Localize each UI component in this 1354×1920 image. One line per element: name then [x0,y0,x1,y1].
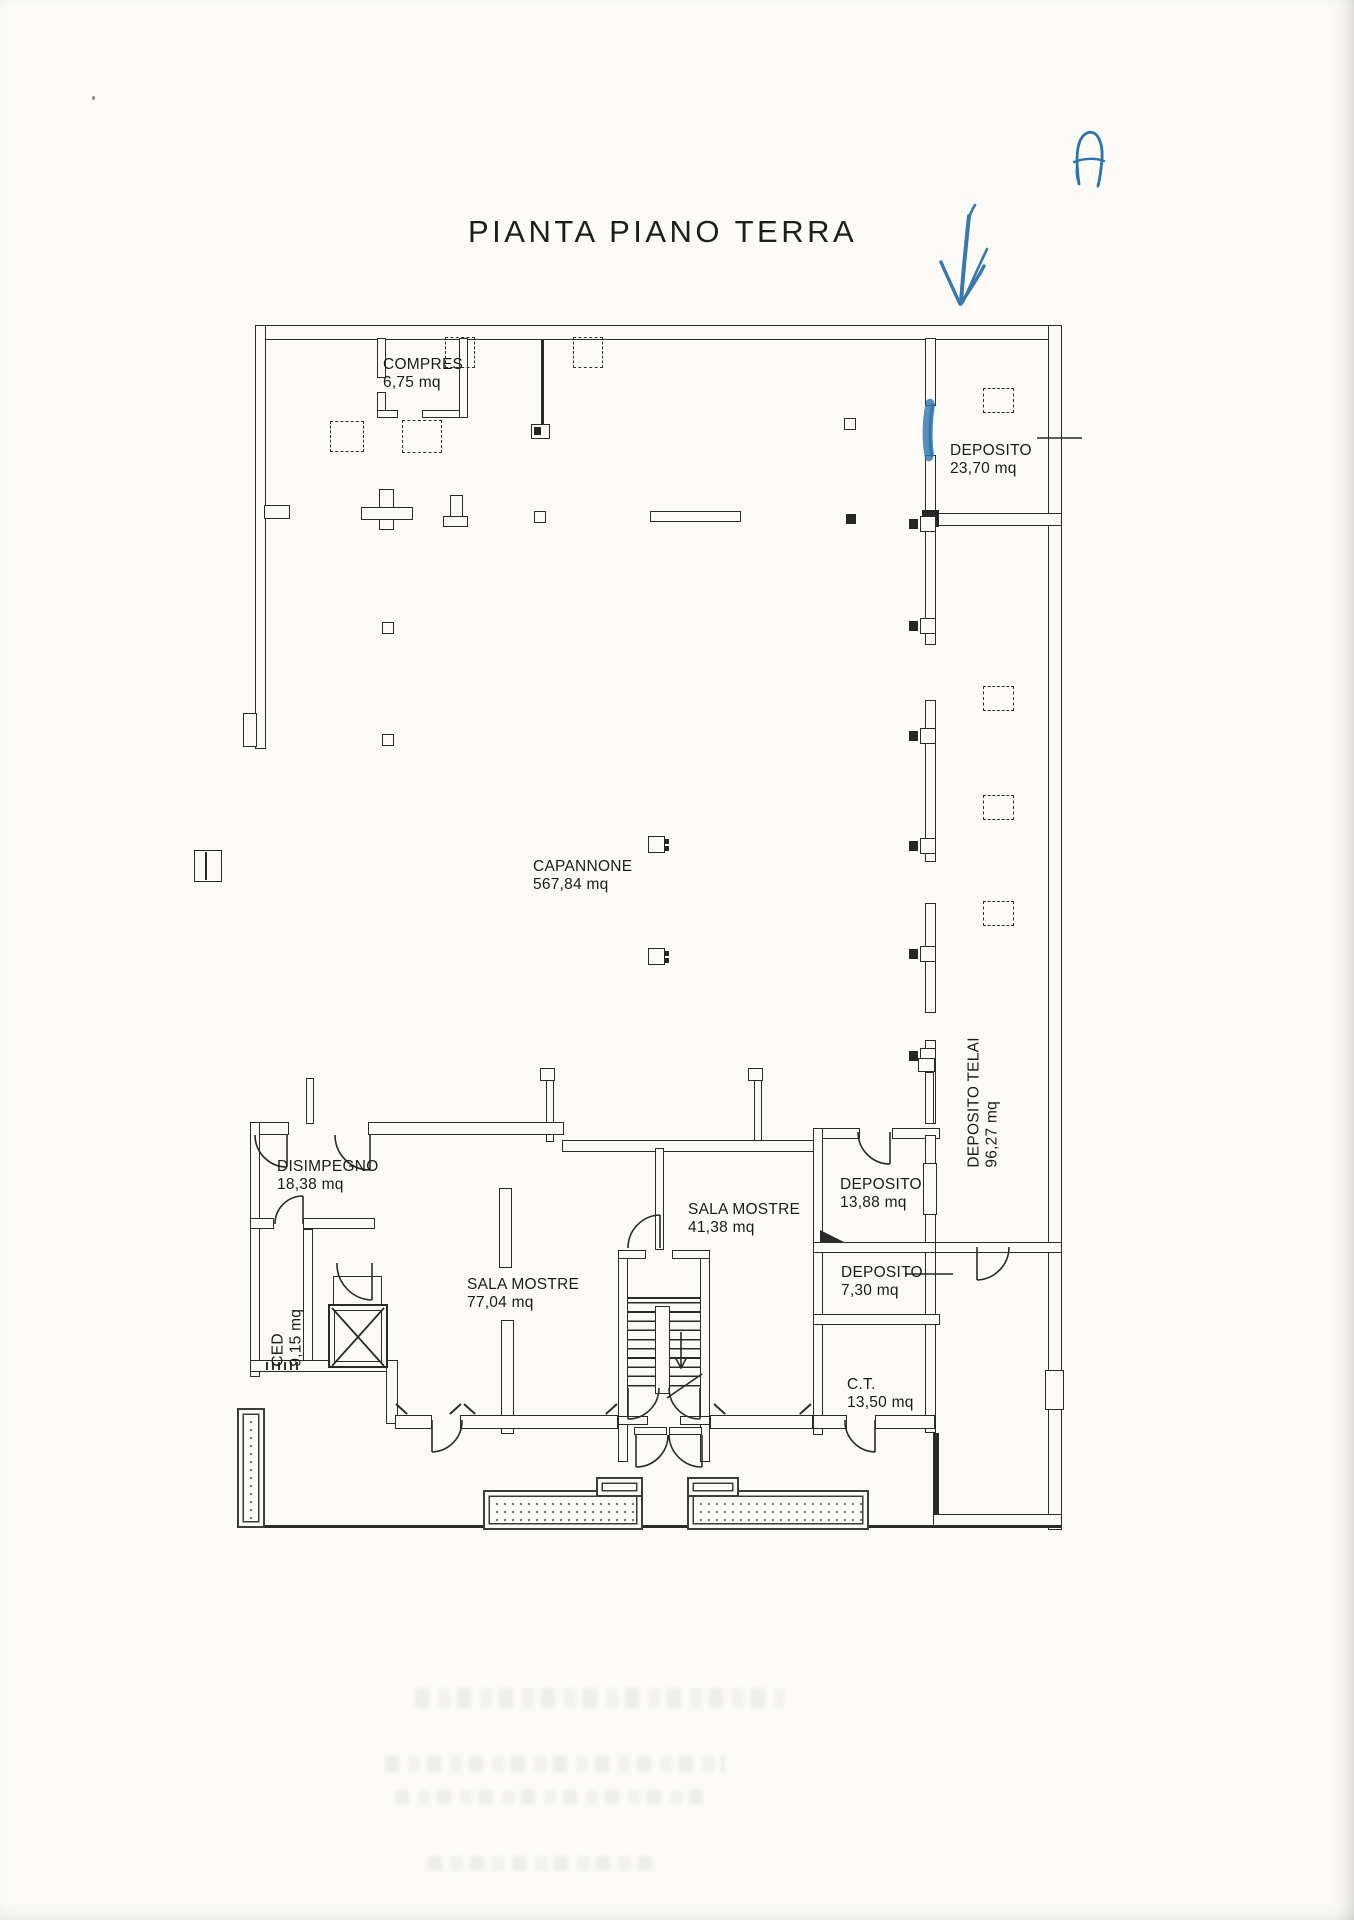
ground-line [240,1525,1062,1528]
wall-left-upper [255,325,266,749]
pilaster-marker [920,946,936,962]
facade-recess-tick [713,1403,726,1415]
column-marker-tick [664,839,669,844]
wall-stub [306,1078,314,1124]
entrance-ramp-right-step [687,1477,739,1497]
ced-top-wall [303,1218,375,1229]
pilaster-marker [920,516,936,532]
room-label-compres: COMPRES 6,75 mq [383,356,463,391]
room-label-sala-mostre-grande: SALA MOSTRE 77,04 mq [467,1276,579,1311]
machine-bar [650,511,741,522]
dashed-column [573,337,603,368]
stub-node [540,1068,555,1081]
dashed-column [983,388,1014,413]
column-marker-filled [846,514,856,524]
wall-left-foot [243,713,257,747]
pilaster-marker [909,519,918,529]
room-label-ct: C.T. 13,50 mq [847,1376,914,1411]
pilaster-marker [920,838,936,854]
pilaster-marker [909,841,918,851]
room-label-deposito-nord: DEPOSITO 23,70 mq [950,442,1032,477]
facade-wall [813,1415,847,1429]
entrance-ramp-center-step [596,1477,643,1497]
facade-recess-tick [463,1403,476,1415]
entrance-ramp-left [237,1408,265,1528]
facade-recess-tick [605,1403,618,1415]
partition-fin [499,1188,512,1268]
window-symbol [1045,1370,1064,1410]
facade-wall [875,1415,935,1429]
room-label-capannone: CAPANNONE 567,84 mq [533,858,632,893]
room-label-disimpegno: DISIMPEGNO 18,38 mq [277,1158,379,1193]
facade-recess-tick [449,1403,462,1415]
bleed-through-text-ghost [428,1856,653,1871]
stair-landing-line [628,1297,700,1299]
machine-bracket-foot [443,516,468,527]
pilaster-marker [909,949,918,959]
room-label-sala-mostre-piccola: SALA MOSTRE 41,38 mq [688,1201,800,1236]
bleed-through-text-ghost [385,1756,725,1772]
wall-stub [541,340,544,426]
deposito-nord-bottom-wall [933,513,1062,526]
ced-top-wall [250,1218,274,1229]
bleed-through-text-ghost [395,1790,705,1804]
column-marker [382,734,394,746]
facade-wall [460,1415,618,1429]
stair-right-wall [700,1250,710,1433]
column-node-fill [534,427,541,435]
stair-top-wall [618,1250,646,1259]
room-label-deposito-telai: DEPOSITO TELAI 96,27 mq [898,1065,1068,1101]
pilaster-marker [909,1051,918,1061]
pilaster-marker [920,728,936,744]
dashed-column [402,420,442,453]
lower-block-top-wall [562,1140,820,1152]
vestibule-wall [618,1424,628,1462]
elevator-landing-box [333,1276,382,1306]
scanned-floor-plan-page: PIANTA PIANO TERRA [0,0,1354,1920]
column-marker [648,948,665,965]
stair-left-wall [618,1250,628,1433]
left-pillar [194,850,222,882]
corridor-wall-segment [925,455,936,645]
plan-linework-overlay [0,0,1354,1920]
room-label-deposito-13: DEPOSITO 13,88 mq [840,1176,922,1211]
wall-right [1048,325,1062,1530]
entrance-door-leaf [634,1427,667,1435]
handwritten-letter-icon [1074,132,1104,186]
wall-notch [264,505,290,519]
column-marker [648,836,665,853]
room-label-deposito-7: DEPOSITO 7,30 mq [841,1264,923,1299]
compres-wall [377,410,398,418]
lower-block-top-wall [368,1122,564,1135]
column-marker-tick [664,958,669,963]
pilaster-marker [920,618,936,634]
corridor-wall-segment [925,338,936,406]
machine-cross-horizontal [361,507,413,520]
column-marker [844,418,856,430]
door-opening [928,1257,934,1289]
wall-stub [754,1078,762,1142]
dashed-column [983,686,1014,711]
door-highlight-mark [927,403,933,457]
dashed-column [983,795,1014,820]
stub-node [748,1068,763,1081]
door-triangle-mark [820,1230,846,1243]
column-marker-tick [664,846,669,851]
paper-speck [92,96,95,100]
entrance-door-leaf [669,1427,702,1435]
facade-wall [395,1415,432,1429]
dashed-column [330,421,364,452]
window-symbol [923,1163,937,1215]
left-pillar-line [205,852,207,880]
rooms-left-wall [813,1128,823,1435]
handwritten-arrow-icon [941,205,987,304]
door-opening [868,1244,898,1251]
column-marker [534,511,546,523]
facade-wall [710,1415,813,1429]
column-marker-tick [664,951,669,956]
yard-left-wall [933,1433,939,1526]
stair-entry-stub [655,1148,664,1250]
pilaster-marker [909,731,918,741]
ct-top-wall [813,1314,940,1325]
stair-spine-wall [655,1306,670,1394]
facade-recess-tick [799,1403,812,1415]
dashed-column [983,901,1014,926]
stair-top-wall [672,1250,710,1259]
column-marker [382,622,394,634]
elevator-shaft [328,1304,388,1368]
bleed-through-text-ghost [415,1688,785,1708]
door-opening [972,1244,1010,1251]
room-label-ced: CED 9,15 mq [242,1304,332,1340]
page-title: PIANTA PIANO TERRA [468,214,857,250]
pilaster-marker [909,621,918,631]
